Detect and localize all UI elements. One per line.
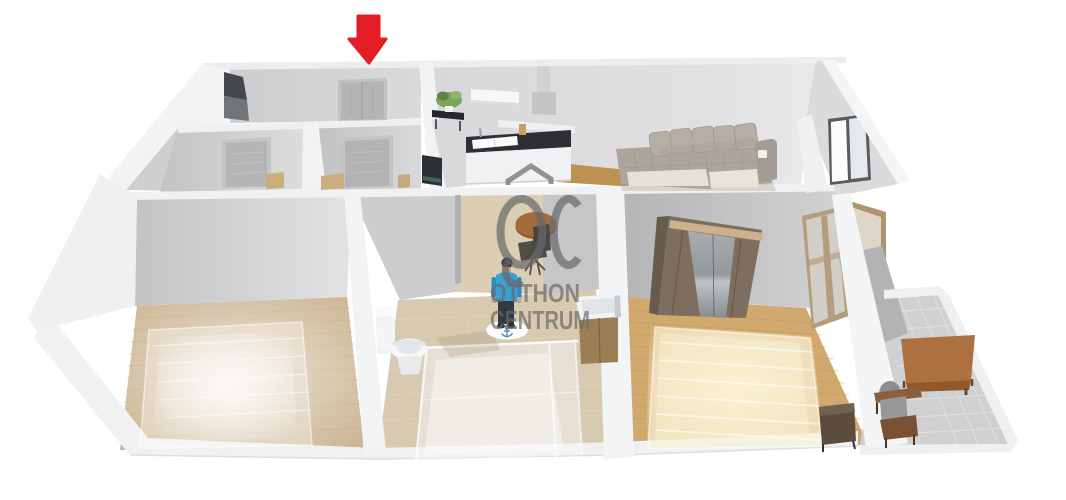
svg-text:CENTRUM: CENTRUM: [490, 305, 590, 335]
svg-text:OTTHON: OTTHON: [490, 278, 580, 308]
